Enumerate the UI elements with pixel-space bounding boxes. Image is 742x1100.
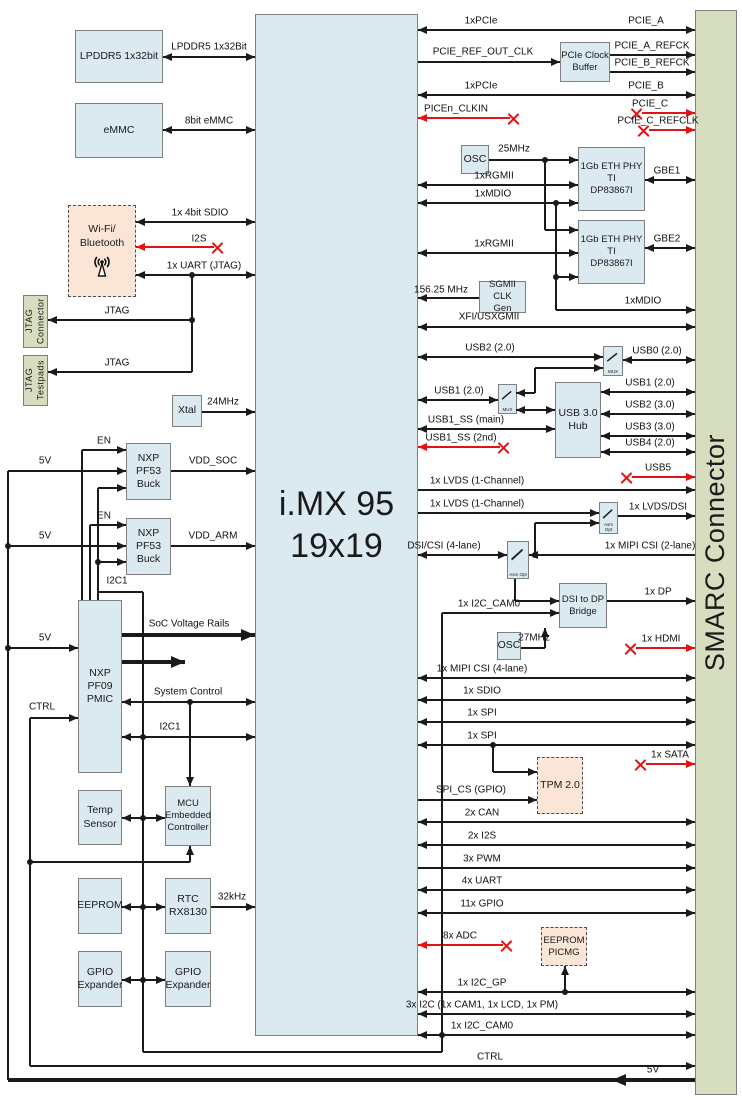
arrowhead	[686, 760, 695, 768]
junction-dot	[140, 904, 146, 910]
signal-label: PICEn_CLKIN	[424, 104, 488, 115]
switch-glyph	[601, 505, 615, 524]
block-label: RTC RX8130	[169, 893, 207, 919]
junction-dot	[562, 989, 568, 995]
arrowhead	[246, 271, 255, 279]
block-pf09-pmic: NXP PF09 PMIC	[78, 600, 122, 773]
signal-label: 1x LVDS (1-Channel)	[430, 499, 524, 510]
arrowhead	[163, 53, 172, 61]
arrowhead	[569, 156, 578, 164]
signal-label: 3x I2C (1x CAM1, 1x LCD, 1x PM)	[406, 1000, 558, 1011]
arrowhead	[594, 364, 603, 372]
signal-label: USB1_SS (main)	[428, 415, 504, 426]
arrowhead	[686, 644, 695, 652]
arrowhead	[136, 218, 145, 226]
signal-label: 1x LVDS (1-Channel)	[430, 476, 524, 487]
wire	[81, 450, 83, 600]
signal-label: 3x PWM	[463, 854, 501, 865]
signal-label: 1x I2C_CAM0	[451, 1021, 513, 1032]
arrowhead	[686, 126, 695, 134]
block-label: i.MX 95 19x19	[279, 483, 394, 568]
block-wifi-bluetooth: Wi-Fi/ Bluetooth	[68, 205, 136, 297]
wire	[534, 368, 536, 393]
arrowhead	[590, 519, 599, 527]
wire	[8, 545, 126, 547]
arrowhead	[418, 425, 427, 433]
block-rtc: RTC RX8130	[165, 878, 211, 934]
signal-label: CTRL	[29, 702, 55, 713]
arrowhead	[601, 388, 610, 396]
no-connect-x	[498, 441, 511, 454]
arrowhead	[601, 410, 610, 418]
signal-label: 1x DP	[644, 587, 671, 598]
block-label: DSI to DP Bridge	[562, 594, 604, 618]
signal-label: 1xPCIe	[465, 16, 498, 27]
signal-label: 5V	[39, 456, 51, 467]
wire	[418, 489, 695, 491]
signal-label: 156.25 MHz	[414, 285, 468, 296]
switch-glyph	[500, 387, 514, 404]
block-usb3-hub: USB 3.0 Hub	[555, 382, 601, 458]
arrowhead	[569, 226, 578, 234]
signal-label: EN	[97, 511, 111, 522]
arrowhead	[246, 218, 255, 226]
block-label: EEPROM PICMG	[543, 935, 584, 959]
block-dsi-csi-mux: Asm Opt	[507, 541, 529, 579]
block-label: Xtal	[178, 404, 196, 417]
wire	[492, 745, 494, 772]
wire	[442, 612, 559, 614]
arrowhead	[686, 323, 695, 331]
no-connect-x	[508, 112, 521, 125]
arrowhead	[686, 864, 695, 872]
arrowhead	[418, 841, 427, 849]
arrowhead	[418, 551, 427, 559]
signal-label: 1xPCIe	[465, 81, 498, 92]
wire	[418, 1034, 695, 1036]
arrowhead	[246, 467, 255, 475]
signal-label: JTAG	[105, 306, 130, 317]
arrowhead	[686, 410, 695, 418]
no-connect-x	[501, 939, 514, 952]
signal-label: 1x SPI	[467, 731, 496, 742]
arrowhead	[246, 733, 255, 741]
arrowhead	[122, 698, 131, 706]
arrowhead	[69, 644, 78, 652]
signal-label: System Control	[154, 687, 222, 698]
signal-label: 1x SATA	[651, 750, 689, 761]
signal-label: GBE2	[654, 234, 681, 245]
arrowhead	[489, 396, 498, 404]
wire	[7, 471, 9, 1080]
no-connect-x	[621, 471, 634, 484]
wire	[418, 428, 555, 430]
switch-glyph	[605, 349, 620, 366]
wire	[521, 647, 545, 649]
signal-label: 27MHz	[518, 633, 550, 644]
arrowhead	[246, 542, 255, 550]
signal-label: 1x LVDS/DSI	[629, 502, 687, 513]
arrowhead	[686, 512, 695, 520]
arrowhead	[418, 323, 427, 331]
arrowhead	[623, 356, 632, 364]
arrowhead	[551, 58, 560, 66]
arrowhead	[122, 903, 131, 911]
wire	[30, 861, 190, 863]
block-eth-phy-2: 1Gb ETH PHY TI DP83867I	[578, 220, 645, 284]
arrowhead	[601, 432, 610, 440]
block-smarc-connector: SMARC Connector	[695, 10, 737, 1095]
wire	[8, 1078, 695, 1082]
arrowhead	[246, 53, 255, 61]
block-label: USB 3.0 Hub	[558, 407, 597, 433]
wire	[418, 94, 695, 96]
signal-label: 5V	[39, 633, 51, 644]
wire	[544, 160, 546, 230]
arrowhead	[686, 597, 695, 605]
wire	[163, 56, 255, 58]
block-label: Wi-Fi/ Bluetooth	[80, 223, 124, 249]
signal-label: I2S	[191, 234, 206, 245]
arrowhead	[686, 1062, 695, 1070]
signal-label: SPI_CS (GPIO)	[436, 785, 506, 796]
wire	[418, 821, 695, 823]
block-lvds-dsi-mux: Asm Opt	[599, 502, 618, 534]
wire	[418, 297, 479, 299]
arrowhead	[418, 249, 427, 257]
arrowhead	[418, 443, 427, 451]
wire	[441, 613, 443, 1052]
arrowhead	[686, 886, 695, 894]
arrowhead	[418, 741, 427, 749]
wire	[556, 309, 695, 311]
arrowhead	[550, 609, 559, 617]
arrowhead	[418, 718, 427, 726]
wire	[97, 488, 99, 600]
block-label: NXP PF09 PMIC	[87, 667, 113, 706]
arrowhead	[136, 271, 145, 279]
arrowhead	[686, 818, 695, 826]
arrowhead	[122, 733, 131, 741]
wire	[189, 702, 191, 786]
junction-dot	[553, 200, 559, 206]
wire	[418, 867, 695, 869]
arrowhead	[122, 976, 131, 984]
arrowhead	[686, 356, 695, 364]
signal-label: 32kHz	[218, 892, 246, 903]
arrowhead	[686, 1031, 695, 1039]
arrowhead	[686, 909, 695, 917]
arrowhead	[418, 909, 427, 917]
arrowhead	[48, 368, 57, 376]
arrowhead	[48, 316, 57, 324]
wire	[601, 391, 695, 393]
arrowhead	[686, 486, 695, 494]
block-emmc: eMMC	[75, 103, 163, 158]
arrowhead	[418, 886, 427, 894]
arrowhead	[686, 1010, 695, 1018]
arrowhead	[645, 244, 654, 252]
wire	[418, 117, 510, 119]
signal-label: LPDDR5 1x32Bit	[171, 42, 247, 53]
arrowhead	[686, 718, 695, 726]
block-label: OSC	[498, 639, 521, 652]
wire	[8, 470, 126, 472]
arrowhead	[546, 425, 555, 433]
signal-label: 2x CAN	[465, 808, 499, 819]
arrowhead	[117, 467, 126, 475]
signal-label: 24MHz	[207, 397, 239, 408]
arrowhead	[418, 1010, 427, 1018]
block-pcie-clock-buffer: PCIe Clock Buffer	[560, 42, 610, 82]
arrowhead	[550, 597, 559, 605]
wire	[535, 367, 603, 369]
wire	[29, 718, 31, 1066]
arrowhead	[686, 741, 695, 749]
block-sgmii-clk-gen: SGMII CLK Gen	[479, 281, 526, 313]
block-temp-sensor: Temp Sensor	[78, 790, 122, 845]
signal-label: PCIE_A_REFCK	[614, 41, 689, 52]
arrowhead	[686, 448, 695, 456]
arrowhead	[117, 521, 126, 529]
signal-label: GBE1	[654, 166, 681, 177]
arrowhead	[418, 91, 427, 99]
junction-dot	[490, 742, 496, 748]
arrowhead	[186, 846, 194, 855]
arrowhead	[418, 114, 427, 122]
signal-label: 11x GPIO	[460, 899, 503, 910]
arrowhead	[569, 181, 578, 189]
signal-label: USB2 (3.0)	[625, 400, 674, 411]
signal-label: 4x UART	[462, 876, 502, 887]
block-tpm: TPM 2.0	[537, 757, 583, 814]
block-gpio-expander-1: GPIO Expander	[78, 951, 122, 1007]
wire	[418, 252, 578, 254]
block-gpio-expander-2: GPIO Expander	[165, 951, 211, 1007]
signal-label: XFI/USXGMII	[459, 312, 520, 323]
block-usb-mux-1: MUX	[603, 346, 623, 376]
signal-label: 8x ADC	[443, 931, 477, 942]
arrowhead	[686, 696, 695, 704]
signal-label: EN	[97, 436, 111, 447]
signal-label: DSI/CSI (4-lane)	[407, 541, 480, 552]
signal-label: PCIE_A	[628, 16, 664, 27]
wire	[418, 799, 537, 801]
junction-dot	[189, 317, 195, 323]
signal-label: I2C1	[159, 722, 180, 733]
signal-label: 1x UART (JTAG)	[167, 261, 241, 272]
signal-label: 2x I2S	[468, 831, 496, 842]
arrowhead	[117, 484, 126, 492]
arrowhead	[117, 542, 126, 550]
arrowhead	[686, 988, 695, 996]
wire	[191, 275, 193, 372]
junction-dot	[27, 859, 33, 865]
wire	[48, 371, 192, 373]
wire	[48, 319, 192, 321]
arrowhead	[156, 976, 165, 984]
signal-label: PCIE_REF_OUT_CLK	[433, 47, 534, 58]
arrowhead	[561, 966, 569, 975]
signal-label: CTRL	[477, 1052, 503, 1063]
wire	[418, 991, 695, 993]
wire	[418, 356, 603, 358]
junction-dot	[542, 157, 548, 163]
mux-tiny-label: Asm Opt	[600, 523, 617, 532]
block-label: GPIO Expander	[78, 966, 123, 992]
wire	[418, 699, 695, 701]
switch-glyph	[509, 544, 526, 566]
signal-label: 1x I2C_CAM0	[458, 599, 520, 610]
wire	[610, 71, 695, 73]
junction-dot	[140, 977, 146, 983]
wire	[30, 1065, 695, 1067]
signal-label: PCIE_C_REFCLK	[617, 116, 698, 127]
arrowhead	[594, 353, 603, 361]
arrowhead	[686, 176, 695, 184]
arrowhead	[686, 244, 695, 252]
wire	[418, 184, 578, 186]
wire	[418, 744, 695, 746]
signal-label: JTAG	[105, 358, 130, 369]
signal-label: 1xRGMII	[474, 171, 513, 182]
mux-tiny-label: MUX	[499, 408, 516, 413]
block-jtag-testpads: JTAG Testpads	[23, 355, 48, 406]
wire	[418, 326, 695, 328]
arrowhead	[498, 551, 507, 559]
wire	[418, 399, 498, 401]
arrowhead	[569, 199, 578, 207]
arrowhead	[528, 768, 537, 776]
block-label: JTAG Testpads	[24, 360, 47, 400]
mux-tiny-label: MUX	[604, 370, 622, 375]
block-eth-phy-1: 1Gb ETH PHY TI DP83867I	[578, 147, 645, 211]
junction-dot	[187, 699, 193, 705]
signal-label: 25MHz	[498, 144, 530, 155]
arrowhead	[246, 903, 255, 911]
arrowhead	[516, 389, 525, 397]
block-label: EEPROM	[77, 899, 123, 912]
wire	[418, 677, 695, 679]
block-xtal: Xtal	[172, 395, 202, 427]
signal-label: USB1_SS (2nd)	[425, 433, 496, 444]
arrowhead	[546, 406, 555, 414]
arrowhead	[686, 674, 695, 682]
signal-label: 5V	[39, 531, 51, 542]
arrowhead	[156, 814, 165, 822]
block-label: SGMII CLK Gen	[480, 279, 525, 315]
arrowhead	[686, 841, 695, 849]
arrowhead	[569, 273, 578, 281]
wire	[601, 413, 695, 415]
block-label: JTAG Connector	[24, 298, 47, 344]
signal-label: USB0 (2.0)	[632, 346, 681, 357]
block-eeprom: EEPROM	[78, 878, 122, 934]
antenna-icon	[87, 253, 117, 279]
block-diagram-canvas: LPDDR5 1x32biteMMCWi-Fi/ BluetoothJTAG C…	[0, 0, 742, 1100]
block-label: PCIe Clock Buffer	[561, 50, 609, 74]
block-usb-mux-2: MUX	[498, 384, 517, 414]
junction-dot	[95, 559, 101, 565]
arrowhead	[117, 558, 126, 566]
wire	[555, 203, 557, 310]
arrowhead	[418, 199, 427, 207]
wire	[618, 515, 695, 517]
wire	[143, 1051, 442, 1053]
no-connect-x	[635, 758, 648, 771]
arrowhead	[418, 26, 427, 34]
signal-label: 1x HDMI	[642, 634, 681, 645]
block-label: TPM 2.0	[540, 779, 580, 792]
junction-dot	[532, 552, 538, 558]
signal-label: PCIE_B	[628, 81, 664, 92]
block-lpddr5: LPDDR5 1x32bit	[75, 30, 163, 83]
block-label: eMMC	[104, 124, 135, 137]
signal-label: VDD_ARM	[189, 531, 238, 542]
signal-label: 8bit eMMC	[185, 116, 233, 127]
arrowhead	[569, 249, 578, 257]
block-label: LPDDR5 1x32bit	[80, 50, 158, 63]
block-label: 1Gb ETH PHY TI DP83867I	[581, 161, 643, 197]
arrowhead	[686, 68, 695, 76]
signal-label: USB1 (2.0)	[625, 378, 674, 389]
arrowhead	[686, 388, 695, 396]
arrowhead	[418, 181, 427, 189]
signal-label: USB4 (2.0)	[625, 438, 674, 449]
signal-label: 5V	[647, 1065, 659, 1076]
block-label: GPIO Expander	[166, 966, 211, 992]
arrowhead	[686, 26, 695, 34]
arrowhead	[686, 306, 695, 314]
wire	[610, 54, 695, 56]
wire	[418, 29, 695, 31]
signal-label: PCIE_B_REFCK	[614, 58, 689, 69]
arrowhead	[418, 1031, 427, 1039]
signal-label: VDD_SOC	[189, 456, 237, 467]
block-label: NXP PF53 Buck	[136, 527, 161, 566]
arrowhead	[163, 126, 172, 134]
arrowhead	[117, 446, 126, 454]
arrowhead	[418, 941, 427, 949]
signal-label: I2C1	[106, 576, 127, 587]
signal-label: USB3 (3.0)	[625, 422, 674, 433]
block-label: 1Gb ETH PHY TI DP83867I	[581, 234, 643, 270]
junction-dot	[5, 645, 11, 651]
block-mcu-embedded-controller: MCU Embedded Controller	[165, 786, 211, 846]
signal-label: 1xMDIO	[625, 296, 662, 307]
block-jtag-connector: JTAG Connector	[23, 295, 48, 348]
arrowhead	[69, 714, 78, 722]
wire	[418, 1013, 695, 1015]
arrowhead	[418, 818, 427, 826]
arrowhead	[601, 448, 610, 456]
block-imx95: i.MX 95 19x19	[255, 14, 418, 1036]
arrowhead	[418, 674, 427, 682]
wire	[418, 844, 695, 846]
arrowhead	[241, 629, 255, 641]
wire	[163, 129, 255, 131]
junction-dot	[140, 815, 146, 821]
arrowhead	[516, 406, 525, 414]
wire	[142, 592, 144, 1052]
block-pf53-buck-2: NXP PF53 Buck	[126, 518, 171, 575]
signal-label: 1xRGMII	[474, 239, 513, 250]
wire	[418, 554, 507, 556]
signal-label: PCIE_C	[632, 99, 668, 110]
wire	[98, 591, 143, 593]
junction-dot	[5, 543, 11, 549]
block-label: NXP PF53 Buck	[136, 452, 161, 491]
